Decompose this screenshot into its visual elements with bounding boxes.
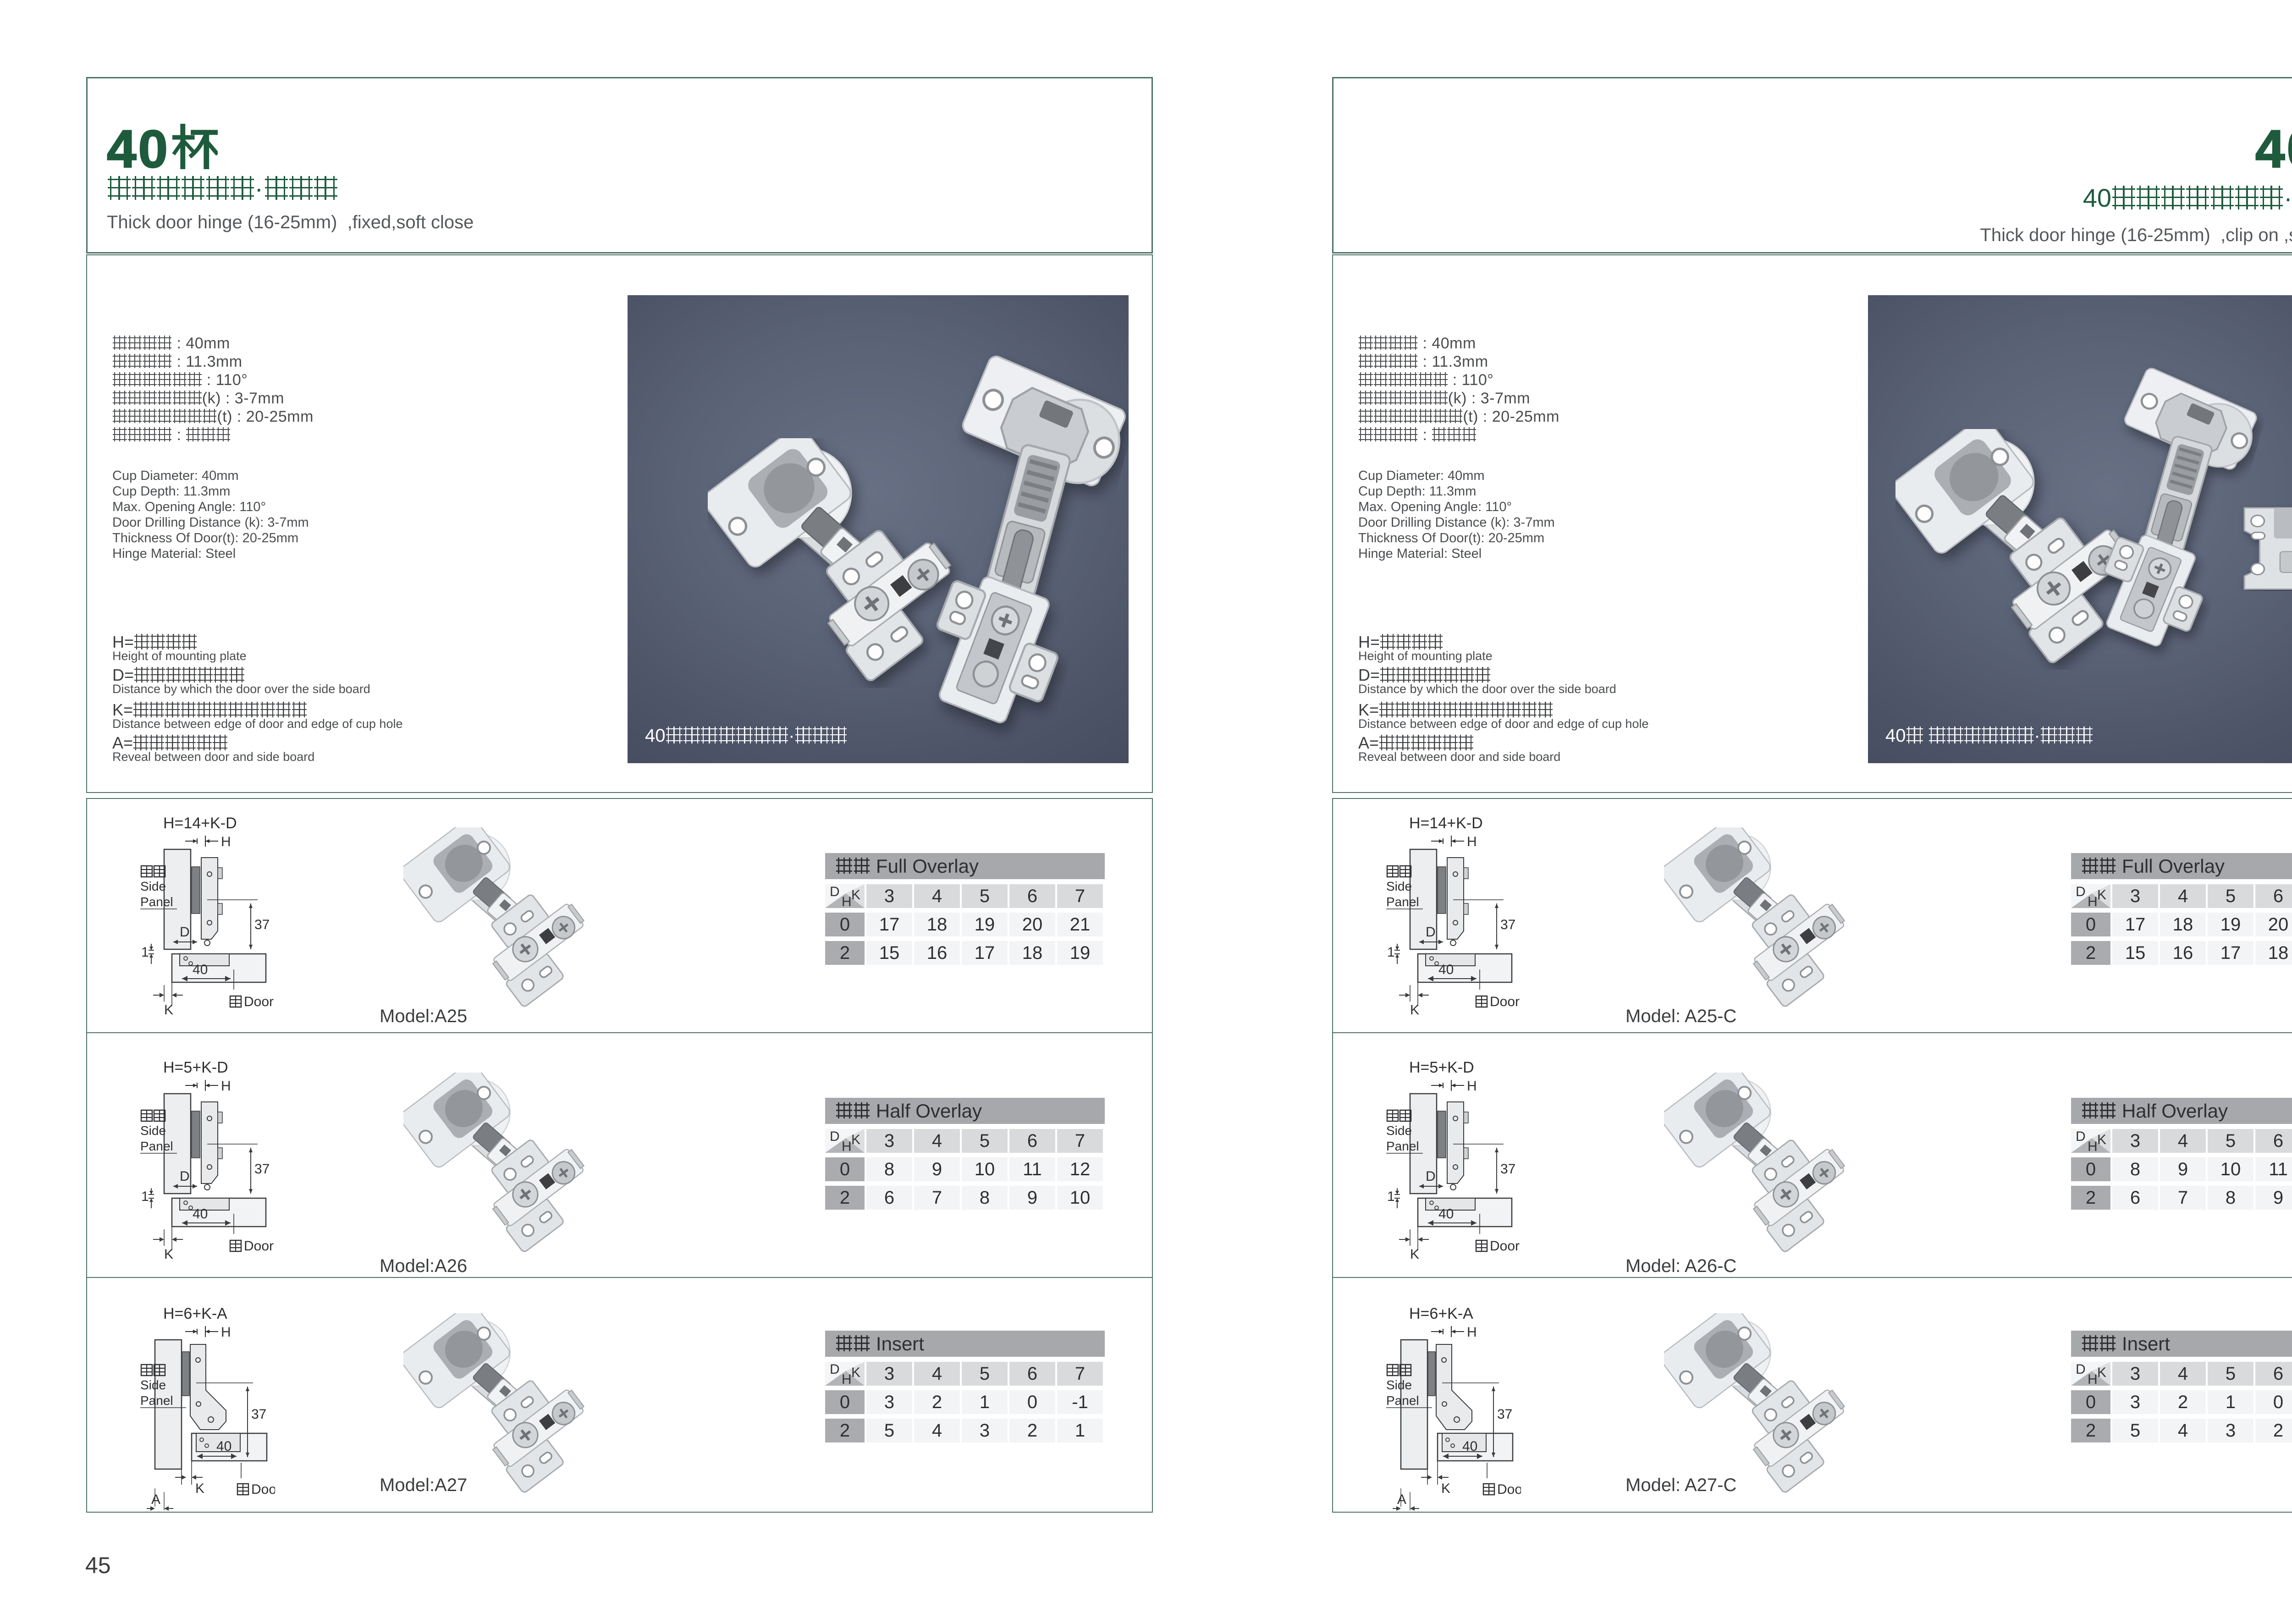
svg-text:K: K — [2097, 887, 2106, 903]
svg-text:H=5+K-D: H=5+K-D — [1409, 1059, 1474, 1076]
svg-text:Panel: Panel — [1386, 1393, 1419, 1408]
svg-text:H: H — [2088, 894, 2098, 908]
svg-text:D: D — [2076, 1129, 2086, 1144]
svg-text:D: D — [1426, 1169, 1436, 1184]
svg-text:H: H — [842, 894, 852, 908]
svg-text:K: K — [164, 1247, 173, 1262]
svg-text:A: A — [151, 1492, 160, 1507]
svg-text:K: K — [1441, 1481, 1450, 1496]
svg-text:40: 40 — [1438, 1206, 1454, 1222]
svg-text:1: 1 — [141, 1189, 149, 1204]
svg-text:Side: Side — [1386, 879, 1412, 893]
svg-text:37: 37 — [254, 917, 270, 932]
svg-text:Panel: Panel — [140, 1139, 173, 1153]
svg-text:D: D — [830, 1129, 840, 1144]
svg-text:Side: Side — [140, 1123, 166, 1138]
svg-text:37: 37 — [251, 1407, 266, 1422]
svg-text:H=6+K-A: H=6+K-A — [1409, 1305, 1473, 1322]
svg-text:H: H — [1467, 1325, 1477, 1340]
svg-text:Door: Door — [1490, 1239, 1520, 1254]
svg-text:D: D — [2076, 884, 2086, 899]
svg-text:Door: Door — [1497, 1482, 1521, 1497]
svg-text:D: D — [1426, 925, 1436, 940]
svg-text:40: 40 — [1438, 962, 1454, 977]
svg-text:40: 40 — [216, 1439, 231, 1454]
svg-text:37: 37 — [1500, 1162, 1515, 1177]
svg-text:K: K — [2097, 1365, 2106, 1380]
svg-text:Panel: Panel — [1386, 895, 1419, 909]
svg-text:K: K — [1410, 1002, 1419, 1018]
svg-text:K: K — [2097, 1132, 2106, 1147]
svg-text:1: 1 — [1387, 1189, 1395, 1204]
svg-text:H: H — [221, 1079, 231, 1094]
svg-text:37: 37 — [1497, 1407, 1512, 1422]
svg-text:H=14+K-D: H=14+K-D — [163, 815, 237, 832]
svg-text:D: D — [180, 1169, 190, 1184]
svg-text:Side: Side — [1386, 1378, 1412, 1392]
svg-text:H: H — [842, 1139, 852, 1153]
svg-text:37: 37 — [254, 1162, 270, 1177]
svg-text:40: 40 — [193, 1206, 208, 1222]
svg-text:H: H — [1467, 1079, 1477, 1094]
svg-text:Door: Door — [1490, 994, 1520, 1009]
svg-text:1: 1 — [141, 945, 149, 960]
svg-text:40: 40 — [193, 962, 208, 977]
svg-text:K: K — [1410, 1247, 1419, 1262]
svg-text:H: H — [842, 1372, 852, 1386]
svg-text:K: K — [851, 1132, 860, 1147]
svg-text:H: H — [1467, 834, 1477, 849]
svg-text:H: H — [221, 1325, 231, 1340]
svg-text:K: K — [851, 887, 860, 903]
svg-text:H: H — [2088, 1372, 2098, 1386]
svg-text:D: D — [830, 884, 840, 899]
svg-text:A: A — [1397, 1492, 1406, 1507]
svg-text:Side: Side — [1386, 1123, 1412, 1138]
svg-text:K: K — [195, 1481, 204, 1496]
svg-text:Side: Side — [140, 879, 166, 893]
svg-text:Panel: Panel — [140, 895, 173, 909]
svg-text:Panel: Panel — [1386, 1139, 1419, 1153]
svg-text:K: K — [851, 1365, 860, 1380]
svg-text:D: D — [2076, 1362, 2086, 1377]
svg-text:H: H — [221, 834, 231, 849]
svg-text:Door: Door — [251, 1482, 275, 1497]
svg-text:Door: Door — [244, 994, 274, 1009]
svg-text:H=5+K-D: H=5+K-D — [163, 1059, 228, 1076]
svg-text:H=6+K-A: H=6+K-A — [163, 1305, 227, 1322]
svg-text:40: 40 — [1462, 1439, 1477, 1454]
svg-text:D: D — [830, 1362, 840, 1377]
svg-text:K: K — [164, 1002, 173, 1018]
svg-text:Door: Door — [244, 1239, 274, 1254]
svg-text:37: 37 — [1500, 917, 1515, 932]
svg-text:1: 1 — [1387, 945, 1395, 960]
svg-text:Side: Side — [140, 1378, 166, 1392]
svg-text:D: D — [180, 925, 190, 940]
svg-text:H=14+K-D: H=14+K-D — [1409, 815, 1483, 832]
svg-text:Panel: Panel — [140, 1393, 173, 1408]
svg-text:H: H — [2088, 1139, 2098, 1153]
